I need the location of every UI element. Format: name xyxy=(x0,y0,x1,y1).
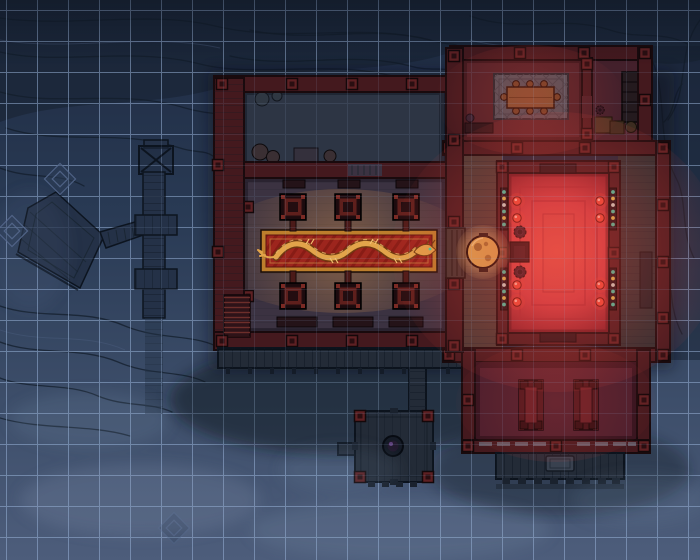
battle-map: Night-time top-down battle map of a clif… xyxy=(0,0,700,560)
map-canvas: Night-time top-down battle map of a clif… xyxy=(0,0,700,560)
grid-overlay-faint xyxy=(0,0,700,560)
top-vignette xyxy=(0,0,700,64)
